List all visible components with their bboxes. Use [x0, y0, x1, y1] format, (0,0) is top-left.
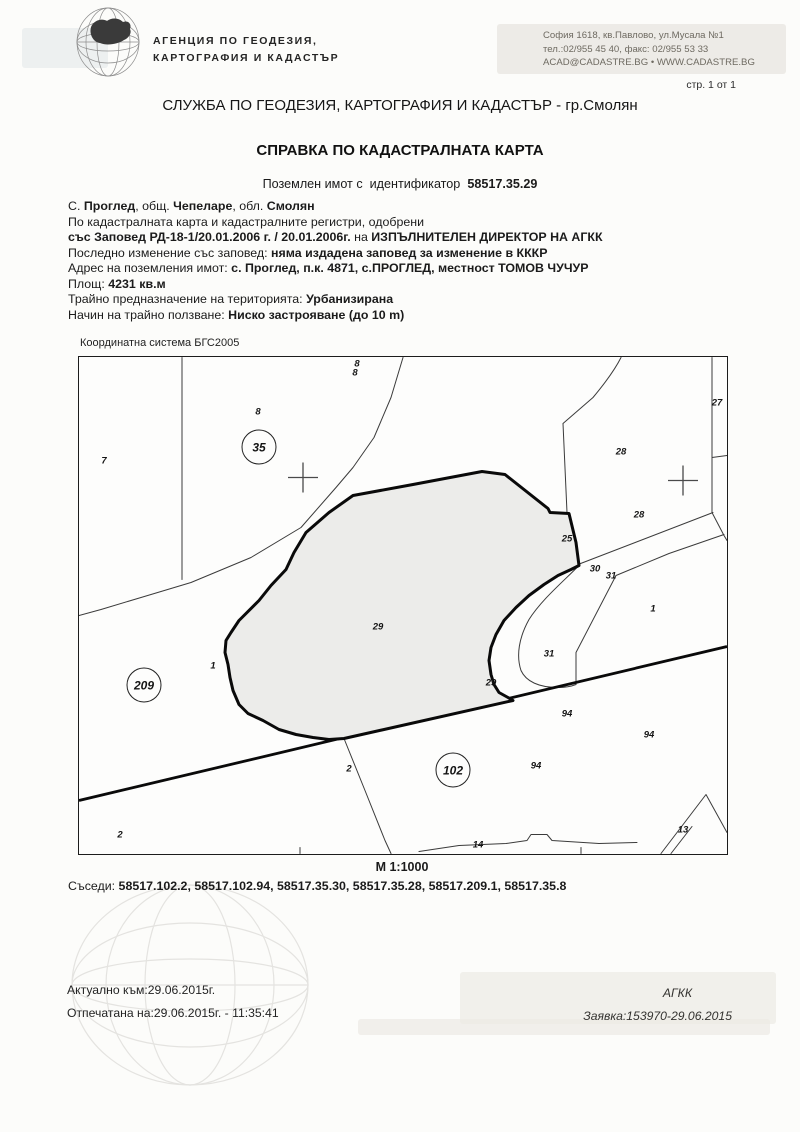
parcel-number-label: 28: [616, 447, 627, 458]
service-title: СЛУЖБА ПО ГЕОДЕЗИЯ, КАРТОГРАФИЯ И КАДАСТ…: [0, 97, 800, 114]
text-segment: с. Проглед, п.к. 4871, с.ПРОГЛЕД, местно…: [231, 261, 588, 275]
agency-name: АГЕНЦИЯ ПО ГЕОДЕЗИЯ, КАРТОГРАФИЯ И КАДАС…: [153, 33, 339, 67]
text-segment: няма издадена заповед за изменение в ККК…: [271, 246, 547, 260]
text-segment: С.: [68, 199, 84, 213]
detail-line: Адрес на поземления имот: с. Проглед, п.…: [68, 261, 758, 277]
text-segment: Ниско застрояване (до 10 m): [228, 308, 404, 322]
agency-address: София 1618, кв.Павлово, ул.Мусала №1: [543, 29, 755, 43]
cadastral-district-circle: 102: [436, 753, 471, 788]
detail-line: Последно изменение със заповед: няма изд…: [68, 246, 758, 262]
map-line: [576, 576, 616, 685]
cadastral-map: 8887272828253031129311299494942213143520…: [78, 356, 728, 855]
detail-line: С. Проглед, общ. Чепеларе, обл. Смолян: [68, 199, 758, 215]
agency-contact-block: София 1618, кв.Павлово, ул.Мусала №1 тел…: [543, 29, 755, 70]
parcel-number-label: 8: [352, 368, 357, 379]
parcel-number-label: 94: [562, 709, 573, 720]
map-line: [661, 795, 727, 854]
parcel-number-label: 31: [606, 571, 617, 582]
cadastral-certificate-page: АГЕНЦИЯ ПО ГЕОДЕЗИЯ, КАРТОГРАФИЯ И КАДАС…: [0, 0, 800, 1132]
text-segment: По кадастралната карта и кадастралните р…: [68, 215, 424, 229]
text-segment: Начин на трайно ползване:: [68, 308, 228, 322]
subject-parcel-polygon: [225, 472, 579, 740]
text-segment: Трайно предназначение на територията:: [68, 292, 306, 306]
text-segment: Чепеларе: [173, 199, 232, 213]
parcel-number-label: 7: [101, 456, 106, 467]
parcel-number-label: 28: [634, 510, 645, 521]
text-segment: , общ.: [135, 199, 173, 213]
map-line: [712, 358, 727, 541]
detail-line: Площ: 4231 кв.м: [68, 277, 758, 293]
detail-line: Трайно предназначение на територията: Ур…: [68, 292, 758, 308]
property-details: С. Проглед, общ. Чепеларе, обл. СмолянПо…: [68, 199, 758, 323]
text-segment: 58517.102.2, 58517.102.94, 58517.35.30, …: [119, 879, 567, 893]
parcel-identifier-line: Поземлен имот с идентификатор 58517.35.2…: [0, 177, 800, 191]
map-line: [563, 358, 621, 513]
detail-line: По кадастралната карта и кадастралните р…: [68, 215, 758, 231]
map-drawing: [79, 357, 727, 854]
bulgaria-map-shape: [90, 18, 130, 44]
page-number: стр. 1 от 1: [686, 79, 736, 91]
current-as-of-date: Актуално към:29.06.2015г.: [67, 983, 215, 997]
map-scale: М 1:1000: [78, 860, 726, 874]
map-line: [419, 835, 637, 852]
parcel-number-label: 2: [117, 830, 122, 841]
parcel-number-label: 94: [531, 761, 542, 772]
text-segment: Смолян: [267, 199, 315, 213]
text-segment: ИЗПЪЛНИТЕЛЕН ДИРЕКТОР НА АГКК: [371, 230, 602, 244]
agency-name-line1: АГЕНЦИЯ ПО ГЕОДЕЗИЯ,: [153, 33, 339, 50]
text-segment: 4231 кв.м: [108, 277, 165, 291]
parcel-number-label: 30: [590, 564, 601, 575]
parcel-number-label: 29: [486, 678, 497, 689]
grid-cross-icon: [668, 466, 698, 496]
parcel-number-label: 1: [210, 661, 215, 672]
agency-phone: тел.:02/955 45 40, факс: 02/955 53 33: [543, 43, 755, 57]
printed-on-timestamp: Отпечатана на:29.06.2015г. - 11:35:41: [67, 1006, 279, 1020]
parcel-identifier-value: 58517.35.29: [467, 177, 537, 191]
agency-logo-globe-icon: [74, 5, 142, 79]
map-line: [578, 513, 713, 565]
parcel-number-label: 14: [473, 840, 484, 851]
parcel-number-label: 25: [562, 534, 573, 545]
detail-line: Начин на трайно ползване: Ниско застрояв…: [68, 308, 758, 324]
parcel-number-label: 2: [346, 764, 351, 775]
parcel-identifier-prefix: Поземлен имот с идентификатор: [263, 177, 468, 191]
map-line: [344, 739, 391, 854]
parcel-number-label: 94: [644, 730, 655, 741]
text-segment: на: [351, 230, 372, 244]
agency-abbreviation: АГКК: [663, 986, 692, 1000]
cadastral-district-circle: 209: [127, 668, 162, 703]
parcel-number-label: 27: [712, 398, 723, 409]
parcel-number-label: 1: [650, 604, 655, 615]
text-segment: Урбанизирана: [306, 292, 393, 306]
text-segment: Адрес на поземления имот:: [68, 261, 231, 275]
coordinate-system-label: Координатна система БГС2005: [80, 337, 239, 349]
parcel-number-label: 13: [678, 825, 689, 836]
map-line: [616, 535, 724, 576]
text-segment: Съседи:: [68, 879, 119, 893]
parcel-number-label: 31: [544, 649, 555, 660]
text-segment: Площ:: [68, 277, 108, 291]
cadastral-district-circle: 35: [242, 430, 277, 465]
text-segment: със Заповед РД-18-1/20.01.2006 г. / 20.0…: [68, 230, 351, 244]
text-segment: Последно изменение със заповед:: [68, 246, 271, 260]
agency-name-line2: КАРТОГРАФИЯ И КАДАСТЪР: [153, 50, 339, 67]
parcel-number-label: 8: [255, 407, 260, 418]
document-title: СПРАВКА ПО КАДАСТРАЛНАТА КАРТА: [0, 142, 800, 159]
grid-cross-icon: [288, 463, 318, 493]
parcel-number-label: 29: [373, 622, 384, 633]
map-line: [712, 456, 727, 458]
agency-email-web: ACAD@CADASTRE.BG • WWW.CADASTRE.BG: [543, 56, 755, 70]
text-segment: Проглед: [84, 199, 135, 213]
neighbors-line: Съседи: 58517.102.2, 58517.102.94, 58517…: [68, 879, 768, 893]
detail-line: със Заповед РД-18-1/20.01.2006 г. / 20.0…: [68, 230, 758, 246]
text-segment: , обл.: [232, 199, 266, 213]
request-number: Заявка:153970-29.06.2015: [583, 1009, 732, 1023]
